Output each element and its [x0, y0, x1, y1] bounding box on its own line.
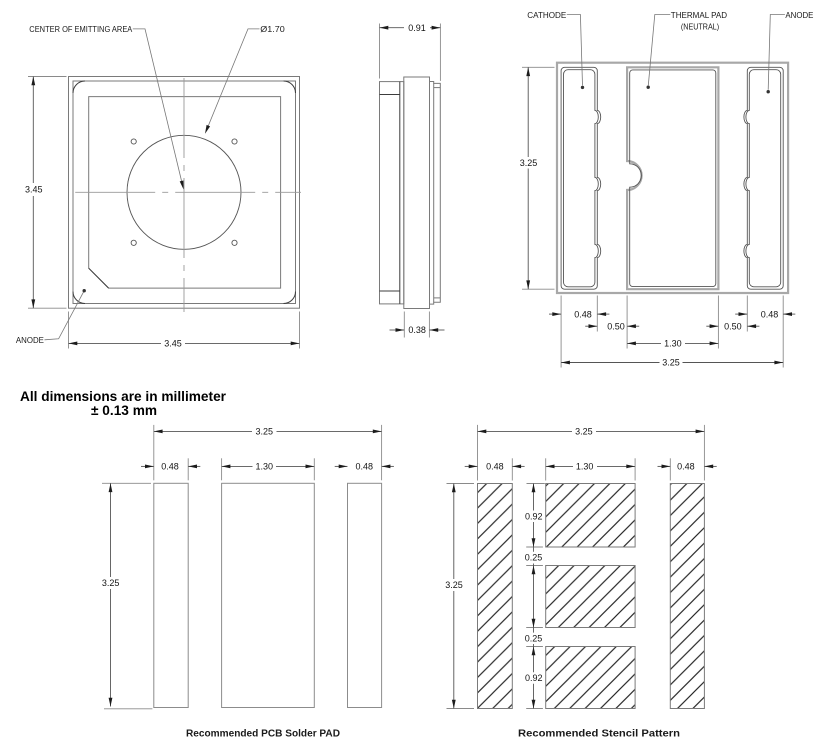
- svg-text:CENTER OF EMITTING AREA: CENTER OF EMITTING AREA: [29, 24, 132, 34]
- svg-text:0.48: 0.48: [356, 462, 374, 472]
- svg-text:(NEUTRAL): (NEUTRAL): [681, 22, 719, 32]
- svg-text:3.45: 3.45: [164, 339, 182, 349]
- svg-text:1.30: 1.30: [256, 462, 274, 472]
- svg-text:0.48: 0.48: [761, 309, 779, 319]
- svg-text:3.25: 3.25: [102, 578, 120, 588]
- svg-text:0.48: 0.48: [486, 462, 504, 472]
- svg-text:0.50: 0.50: [607, 321, 625, 331]
- svg-text:0.38: 0.38: [408, 325, 426, 335]
- svg-text:3.25: 3.25: [520, 158, 538, 168]
- svg-text:Recommended Stencil Pattern: Recommended Stencil Pattern: [518, 727, 680, 739]
- svg-text:3.25: 3.25: [575, 427, 593, 437]
- svg-text:3.25: 3.25: [256, 427, 274, 437]
- svg-text:3.25: 3.25: [662, 358, 680, 368]
- svg-text:3.45: 3.45: [25, 185, 43, 195]
- svg-text:Ø1.70: Ø1.70: [260, 24, 285, 34]
- svg-text:CATHODE: CATHODE: [527, 10, 566, 20]
- svg-text:3.25: 3.25: [445, 580, 463, 590]
- svg-text:0.50: 0.50: [724, 321, 742, 331]
- svg-text:± 0.13 mm: ± 0.13 mm: [91, 403, 157, 418]
- svg-text:0.48: 0.48: [161, 462, 179, 472]
- svg-text:0.48: 0.48: [574, 309, 592, 319]
- svg-text:ANODE: ANODE: [785, 10, 813, 20]
- svg-text:0.92: 0.92: [525, 512, 543, 522]
- svg-text:0.91: 0.91: [408, 23, 426, 33]
- svg-text:0.25: 0.25: [525, 553, 543, 563]
- svg-text:1.30: 1.30: [576, 462, 594, 472]
- svg-text:All dimensions are in millimet: All dimensions are in millimeter: [20, 389, 227, 404]
- svg-text:Recommended PCB Solder PAD: Recommended PCB Solder PAD: [186, 727, 340, 739]
- svg-text:0.92: 0.92: [525, 673, 543, 683]
- svg-text:1.30: 1.30: [664, 339, 682, 349]
- svg-text:0.48: 0.48: [677, 462, 695, 472]
- svg-text:0.25: 0.25: [525, 633, 543, 643]
- svg-text:THERMAL PAD: THERMAL PAD: [671, 10, 727, 20]
- svg-text:ANODE: ANODE: [16, 335, 44, 345]
